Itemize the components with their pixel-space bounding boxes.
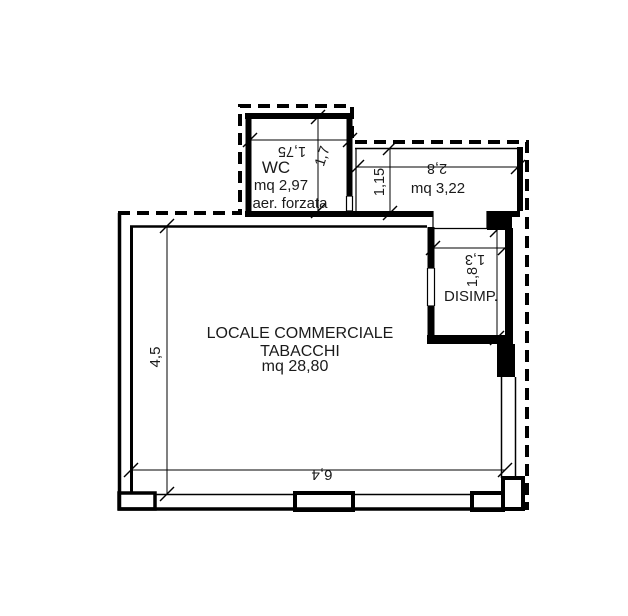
wc-area-label: mq 2,97 [254, 177, 308, 194]
room322-area-label: mq 3,22 [411, 180, 465, 197]
wc-dim-width-label: 1,75 [278, 143, 306, 159]
dimension-lines [131, 117, 518, 494]
walls [118, 113, 523, 510]
wall-right-pier [497, 344, 515, 377]
wall-corner-bottom-right [503, 478, 523, 509]
disimp-dim-width-label: 1,3 [465, 251, 485, 267]
dimension-ticks [124, 110, 525, 501]
room322-dim-width-label: 2,8 [427, 160, 447, 176]
room322-dim-height-label: 1,15 [372, 168, 388, 196]
wc-dim-height-label: 1,7 [312, 144, 333, 168]
main-dim-height-label: 4,5 [147, 347, 164, 368]
floor-plan-drawing: 1,75 1,7 WC mq 2,97 aer. forzata 1,15 2,… [0, 0, 628, 616]
disimp-dim-height-label: 1,8 [465, 267, 481, 287]
main-room-label-line1: LOCALE COMMERCIALE [207, 325, 394, 342]
wall-disimp-right [505, 228, 513, 345]
wall-corner-bottom-left [119, 493, 155, 509]
wc-note-label: aer. forzata [252, 195, 328, 212]
wc-room-label: WC [262, 158, 290, 177]
floor-plan-page: 1,75 1,7 WC mq 2,97 aer. forzata 1,15 2,… [0, 0, 628, 616]
disimp-room-label: DISIMP. [444, 288, 498, 305]
main-room-area-label: mq 28,80 [262, 358, 329, 375]
main-dim-width-label: 6,4 [312, 466, 333, 483]
